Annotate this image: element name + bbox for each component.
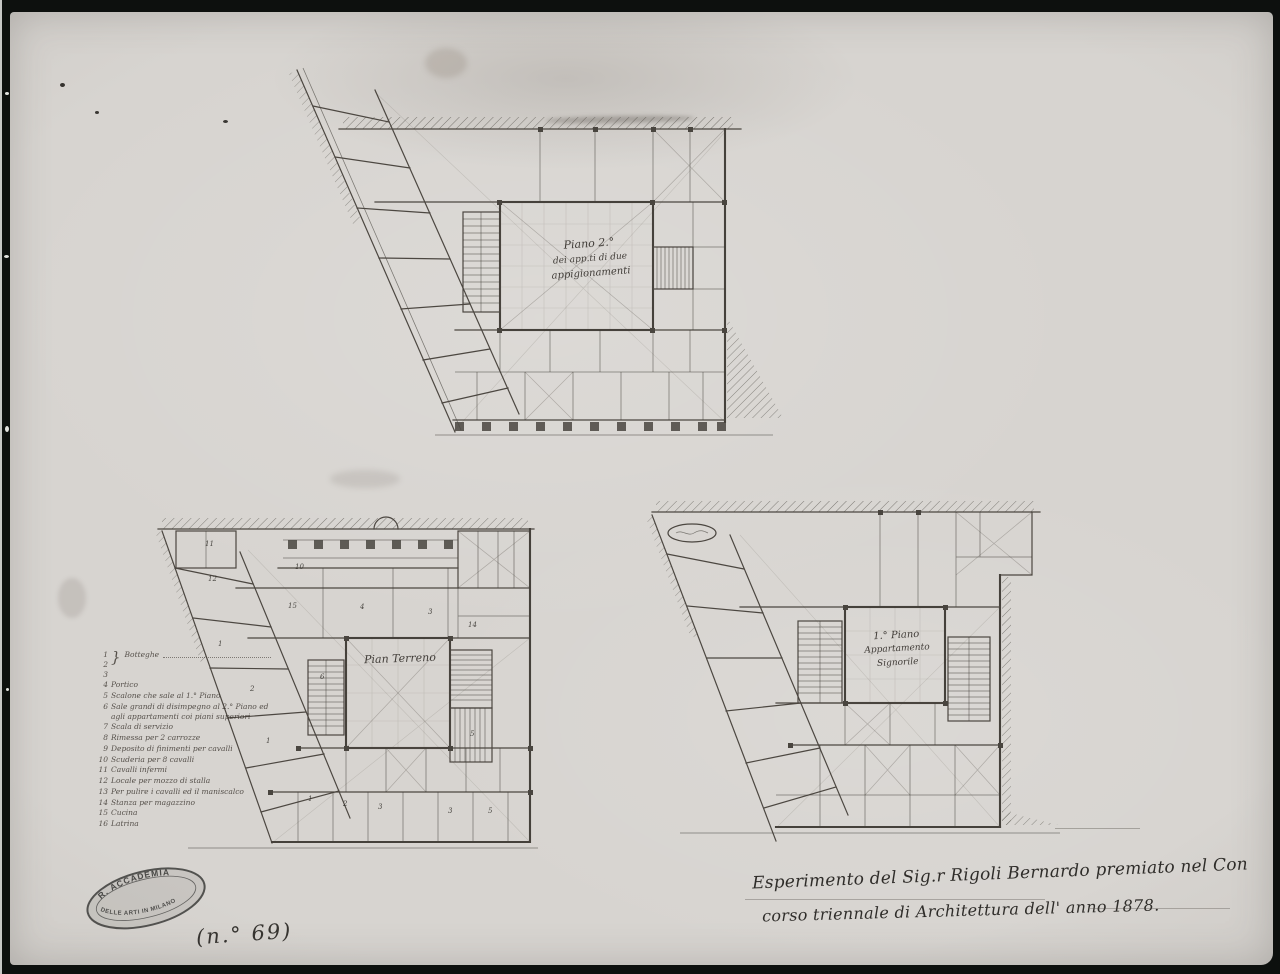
legend: 1 2 3 } Botteghe 4Portico 5Scalone che s… [95,650,273,830]
legend-text: Botteghe [125,650,160,660]
legend-row: 11Cavalli infermi [95,765,273,775]
legend-text: Locale per mozzo di stalla [111,776,273,786]
legend-number: 1 2 3 [95,650,108,679]
legend-text: Latrina [111,819,273,829]
dust-speck [5,92,9,95]
legend-row: 13Per pulire i cavalli ed il maniscalco [95,787,273,797]
room-number: 1 [308,795,312,803]
legend-row: 15Cucina [95,808,273,818]
legend-row: 6Sale grandi di disimpegno al 2.° Piano … [95,702,273,722]
dust-speck [223,120,228,123]
pencil-guideline [1090,908,1230,909]
dust-speck [4,255,9,258]
legend-row: 14Stanza per magazzino [95,798,273,808]
room-number: 14 [468,621,477,629]
legend-text: Scuderia per 8 cavalli [111,755,273,765]
legend-row: 8Rimessa per 2 carrozze [95,733,273,743]
legend-number: 6 [95,702,108,712]
legend-text: Sale grandi di disimpegno al 2.° Piano e… [111,702,273,722]
legend-row: 10Scuderia per 8 cavalli [95,755,273,765]
legend-text: Scalone che sale al 1.° Piano [111,691,273,701]
legend-number: 10 [95,755,108,765]
room-number: 11 [205,540,214,548]
dust-speck [5,426,9,432]
room-number: 3 [448,807,452,815]
room-number: 2 [343,800,347,808]
legend-row: 12Locale per mozzo di stalla [95,776,273,786]
dust-speck [6,688,9,691]
legend-row: 9Deposito di finimenti per cavalli [95,744,273,754]
legend-text: Portico [111,680,273,690]
legend-number: 14 [95,798,108,808]
legend-number: 16 [95,819,108,829]
legend-text: Scala di servizio [111,722,273,732]
legend-number: 8 [95,733,108,743]
legend-number: 12 [95,776,108,786]
legend-text: Deposito di finimenti per cavalli [111,744,273,754]
legend-text: Per pulire i cavalli ed il maniscalco [111,787,273,797]
legend-number: 5 [95,691,108,701]
room-number: 12 [208,575,217,583]
legend-text: Cucina [111,808,273,818]
photo-edge-highlight [0,0,2,974]
room-number: 3 [428,608,432,616]
dust-speck [95,111,99,114]
legend-text: Stanza per magazzino [111,798,273,808]
legend-row: 4Portico [95,680,273,690]
legend-number: 15 [95,808,108,818]
room-number: 1 [218,640,222,648]
photograph-of-architectural-drawing: Piano 2.° dei app.ti di due appigionamen… [0,0,1280,974]
legend-number: 13 [95,787,108,797]
legend-number: 9 [95,744,108,754]
dust-speck [60,83,65,87]
first-floor-plan-label: 1.° Piano Appartamento Signorile [821,624,973,674]
room-number: 5 [470,730,474,738]
room-number: 15 [288,602,297,610]
legend-number: 11 [95,765,108,775]
legend-row: 16Latrina [95,819,273,829]
room-number: 3 [378,803,382,811]
room-number: 10 [295,563,304,571]
legend-text: Rimessa per 2 carrozze [111,733,273,743]
legend-number: 4 [95,680,108,690]
pencil-guideline [745,899,1045,900]
legend-row: 7Scala di servizio [95,722,273,732]
room-number: 4 [360,603,364,611]
room-number: 5 [488,807,492,815]
legend-leader-line [163,650,271,658]
legend-brace: } [111,650,121,665]
room-number: 6 [320,673,324,681]
legend-text: Cavalli infermi [111,765,273,775]
legend-row: 5Scalone che sale al 1.° Piano [95,691,273,701]
ground-line-extension [1055,828,1140,829]
legend-number: 7 [95,722,108,732]
legend-row: 1 2 3 } Botteghe [95,650,273,679]
